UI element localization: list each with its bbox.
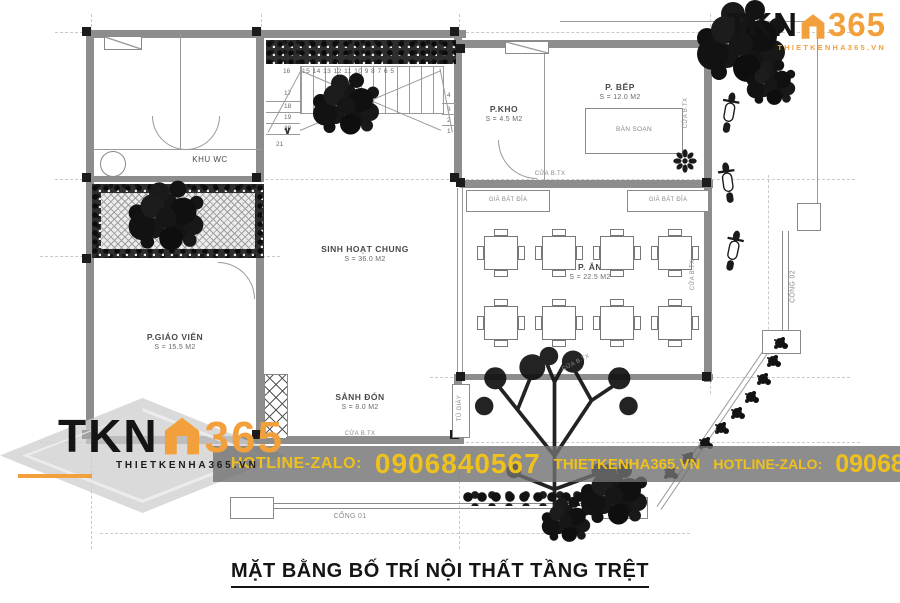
door-label: CỬA B.TX	[690, 250, 696, 300]
room-label-p-bep: P. BẾP	[565, 82, 675, 93]
column	[450, 27, 459, 36]
column	[82, 173, 91, 182]
tree-icon	[605, 487, 623, 505]
column	[252, 173, 261, 182]
door-arc-icon	[218, 262, 255, 299]
room-label-sanh-don: SẢNH ĐÓN	[305, 392, 415, 403]
dining-table	[542, 236, 576, 270]
planter-hatch	[101, 193, 255, 249]
stair-line	[266, 112, 300, 113]
chair	[494, 270, 508, 277]
hotline-number: 0906840567	[835, 450, 900, 479]
stair-number: 4	[447, 92, 451, 99]
room-area-p-kho: S = 4.5 M2	[466, 116, 542, 123]
door-arc-icon	[152, 116, 186, 150]
column	[252, 27, 261, 36]
dining-table	[600, 306, 634, 340]
wall	[460, 180, 713, 188]
logo-accent-bar	[18, 474, 92, 478]
stair-number: 21	[276, 141, 283, 148]
dish-rack: GIÁ BÁT ĐĨA	[466, 190, 550, 212]
chair	[610, 270, 624, 277]
column	[702, 44, 711, 53]
dining-table	[484, 236, 518, 270]
column	[82, 254, 91, 263]
chair	[593, 246, 600, 260]
column	[456, 178, 465, 187]
chair	[692, 316, 699, 330]
dining-table	[542, 306, 576, 340]
room-label-p-kho: P.KHO	[466, 104, 542, 115]
drawing-title: MẶT BẰNG BỐ TRÍ NỘI THẤT TẦNG TRỆT	[231, 560, 649, 588]
motorbike-icon	[713, 157, 742, 212]
gate-post	[230, 497, 274, 519]
column	[702, 372, 711, 381]
logo-number: 365	[828, 10, 886, 40]
chair	[634, 246, 641, 260]
door-label: CỬA B.TX	[683, 88, 689, 138]
logo-number: 365	[205, 419, 284, 456]
house-icon	[161, 416, 203, 456]
dish-rack: GIÁ BÁT ĐĨA	[627, 190, 709, 212]
shrub-icon	[716, 423, 726, 433]
shrub-icon	[775, 338, 785, 348]
gate-02-label: CỔNG 02	[790, 257, 797, 317]
shrub-row	[462, 490, 587, 506]
logo-site-url: THIETKENHA365.VN	[727, 43, 886, 52]
tree-icon	[559, 514, 572, 527]
stair-number: 18	[284, 103, 291, 110]
gate-02-line	[782, 231, 789, 331]
shrub-icon	[758, 374, 768, 384]
hotline-label: HOTLINE-ZALO:	[713, 456, 822, 472]
chair	[494, 299, 508, 306]
dining-table	[484, 306, 518, 340]
shrub-icon	[746, 392, 756, 402]
logo-text: TKN	[58, 417, 159, 456]
hotline-banner: HOTLINE-ZALO: 0906840567 THIETKENHA365.V…	[213, 446, 900, 482]
window-icon	[104, 36, 142, 50]
chair	[651, 316, 658, 330]
chair	[535, 246, 542, 260]
stair-line	[442, 125, 456, 126]
shrub-icon	[768, 356, 778, 366]
partition-line	[544, 48, 545, 180]
gate-post	[797, 203, 821, 231]
stair-numbers-top: 15 14 13 12 11 10 9 8 7 6 5	[302, 68, 440, 75]
motorbike-icon	[717, 224, 749, 279]
chair	[552, 299, 566, 306]
chair	[634, 316, 641, 330]
dining-table	[658, 306, 692, 340]
room-label-sinh-hoat-chung: SINH HOẠT CHUNG	[295, 244, 435, 255]
chair	[593, 316, 600, 330]
axis-line	[100, 533, 690, 534]
motorbike-icon	[714, 86, 745, 141]
chair	[552, 229, 566, 236]
chair	[668, 340, 682, 347]
logo-bottom-left: TKN 365 THIETKENHA365.VN	[58, 416, 284, 471]
door-label: CỬA B.TX	[505, 171, 595, 177]
column	[82, 27, 91, 36]
door-label: CỬA B.TX	[320, 431, 400, 437]
house-icon	[799, 13, 827, 40]
chair	[668, 299, 682, 306]
tree-icon	[156, 208, 176, 228]
window-icon	[505, 41, 549, 54]
chair	[651, 246, 658, 260]
room-area-p-giao-vien: S = 15.5 M2	[110, 344, 240, 351]
sink-icon	[100, 151, 126, 177]
column	[456, 44, 465, 53]
room-label-khu-wc: KHU WC	[140, 155, 280, 165]
room-area-sanh-don: S = 8.0 M2	[305, 404, 415, 411]
hotline-number: 0906840567	[375, 448, 541, 480]
tree-icon	[764, 77, 777, 90]
chair	[518, 246, 525, 260]
drawing-title-wrap: MẶT BẰNG BỐ TRÍ NỘI THẤT TẦNG TRỆT	[0, 560, 880, 588]
stair-arrow-icon: ∨	[283, 124, 292, 137]
chair	[477, 316, 484, 330]
banner-site-url: THIETKENHA365.VN	[554, 456, 701, 473]
dish-rack-label: GIÁ BÁT ĐĨA	[467, 197, 549, 203]
chair	[494, 229, 508, 236]
dining-table	[658, 236, 692, 270]
flower-icon	[672, 148, 698, 174]
chair	[576, 316, 583, 330]
chair	[668, 229, 682, 236]
logo-site-url: THIETKENHA365.VN	[116, 460, 284, 471]
prep-table-label: BÀN SOẠN	[586, 126, 682, 133]
chair	[518, 316, 525, 330]
stair-number: 1	[447, 128, 451, 135]
prep-table: BÀN SOẠN	[585, 108, 683, 154]
dish-rack-label: GIÁ BÁT ĐĨA	[628, 197, 708, 203]
logo-text: TKN	[727, 10, 798, 40]
chair	[610, 229, 624, 236]
logo-top-right: TKN 365 THIETKENHA365.VN	[727, 10, 886, 52]
door-arc-icon	[186, 116, 220, 150]
tree-icon	[337, 97, 355, 115]
shrub-icon	[732, 408, 742, 418]
chair	[610, 299, 624, 306]
stair-line	[442, 103, 456, 104]
stair-planter	[266, 40, 456, 64]
chair	[535, 316, 542, 330]
room-area-p-bep: S = 12.0 M2	[565, 94, 675, 101]
chair	[552, 270, 566, 277]
planter	[92, 184, 264, 258]
dining-table	[600, 236, 634, 270]
gate-01-label: CỔNG 01	[315, 513, 385, 520]
chair	[477, 246, 484, 260]
wall	[86, 30, 466, 38]
chair	[576, 246, 583, 260]
column	[702, 178, 711, 187]
stair-number: 19	[284, 114, 291, 121]
wall	[460, 40, 713, 48]
stair-number: 16	[283, 68, 290, 75]
room-label-p-giao-vien: P.GIÁO VIÊN	[110, 332, 240, 343]
room-area-sinh-hoat-chung: S = 36.0 M2	[295, 256, 435, 263]
chair	[668, 270, 682, 277]
floor-plan-page: CỔNG 02 KHU WC P.GIÁO VIÊN S = 15.5 M	[0, 0, 900, 603]
